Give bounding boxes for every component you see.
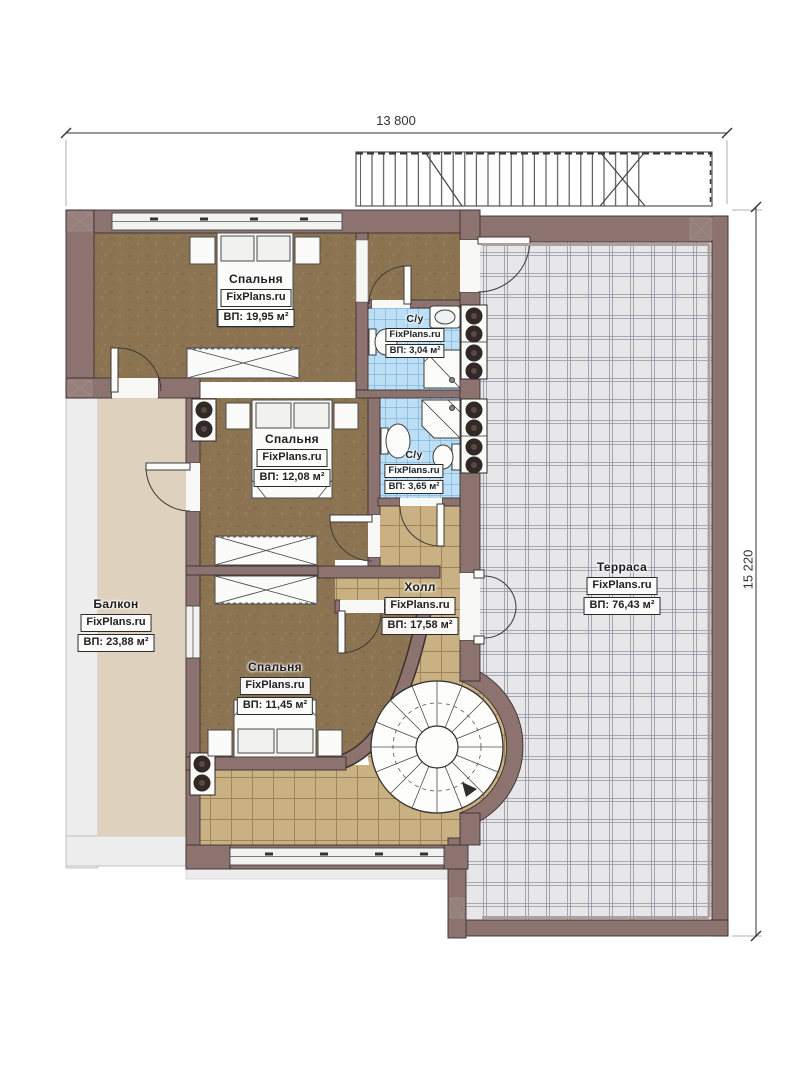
room-label-hall: Холл FixPlans.ru ВП: 17,58 м² [382,580,459,635]
room-area: ВП: 19,95 м² [218,309,295,327]
corridor-floor [368,233,460,300]
room-area: ВП: 76,43 м² [584,597,661,615]
room-label-bathroom-2: С/у FixPlans.ru ВП: 3,65 м² [384,449,443,494]
watermark-fixplans: FixPlans.ru [80,614,151,632]
room-name: Холл [404,580,435,594]
room-name: Спальня [248,660,302,674]
nightstand [295,237,320,264]
nightstand [226,403,250,429]
pergola-trellis [356,152,712,206]
room-area: ВП: 12,08 м² [254,469,331,487]
nightstand [190,237,215,264]
room-name: Спальня [229,272,283,286]
spiral-staircase [371,681,503,813]
nightstand [208,730,232,756]
watermark-fixplans: FixPlans.ru [384,597,455,615]
dimension-width-label: 13 800 [346,113,446,128]
room-label-bedroom-1: Спальня FixPlans.ru ВП: 19,95 м² [218,272,295,327]
floor-plan-drawing [0,0,792,1080]
room-label-bathroom-1: С/у FixPlans.ru ВП: 3,04 м² [385,313,444,358]
nightstand [334,403,358,429]
watermark-fixplans: FixPlans.ru [384,464,443,478]
room-label-terrace: Терраса FixPlans.ru ВП: 76,43 м² [584,560,661,615]
bottom-sill [186,869,468,879]
room-area: ВП: 23,88 м² [78,634,155,652]
room-name: Терраса [597,560,647,574]
balcony-slab-bottom [66,836,188,866]
room-label-balcony: Балкон FixPlans.ru ВП: 23,88 м² [78,597,155,652]
dimension-height-label: 15 220 [741,538,756,602]
room-area: ВП: 3,04 м² [386,344,445,358]
room-area: ВП: 17,58 м² [382,617,459,635]
room-name: С/у [406,313,423,325]
room-label-bedroom-2: Спальня FixPlans.ru ВП: 12,08 м² [254,432,331,487]
watermark-fixplans: FixPlans.ru [586,577,657,595]
opening-bedroom1-corridor [356,240,368,302]
nightstand [318,730,342,756]
watermark-fixplans: FixPlans.ru [220,289,291,307]
watermark-fixplans: FixPlans.ru [239,677,310,695]
room-area: ВП: 3,65 м² [385,480,444,494]
room-name: Спальня [265,432,319,446]
watermark-fixplans: FixPlans.ru [385,328,444,342]
room-label-bedroom-3: Спальня FixPlans.ru ВП: 11,45 м² [237,660,313,715]
watermark-fixplans: FixPlans.ru [256,449,327,467]
room-name: С/у [405,449,422,461]
room-name: Балкон [93,597,138,611]
floor-plan-page: Спальня FixPlans.ru ВП: 19,95 м² С/у Fix… [0,0,792,1080]
room-area: ВП: 11,45 м² [237,697,313,715]
